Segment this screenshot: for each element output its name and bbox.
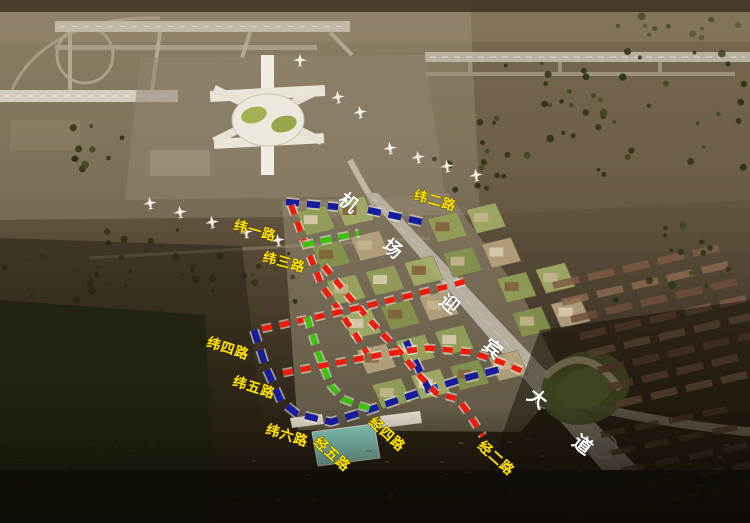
tree <box>663 226 668 231</box>
tree <box>176 228 179 231</box>
tree <box>687 158 694 165</box>
tree <box>106 156 111 161</box>
tree <box>716 112 720 116</box>
tree <box>432 157 437 162</box>
tree <box>600 109 608 117</box>
tree <box>701 250 707 256</box>
tree <box>696 121 700 125</box>
tree <box>480 140 485 145</box>
tree <box>70 124 77 131</box>
tree <box>485 149 490 154</box>
tree <box>619 73 626 80</box>
tree <box>702 145 706 149</box>
tree <box>543 81 548 86</box>
tree <box>624 48 631 55</box>
tree <box>737 99 744 106</box>
tree <box>477 119 484 126</box>
tree <box>741 81 747 87</box>
tree <box>481 159 487 165</box>
tree <box>581 68 587 74</box>
tree <box>452 187 458 193</box>
tree <box>598 98 602 102</box>
tree <box>559 99 564 104</box>
tree <box>475 183 481 189</box>
tree <box>647 104 651 108</box>
tree <box>704 284 708 288</box>
tree <box>567 89 572 94</box>
tree <box>504 64 508 68</box>
tree <box>251 273 255 277</box>
tree <box>494 116 499 121</box>
tree <box>524 152 531 159</box>
tree <box>89 146 95 152</box>
tree <box>582 109 589 116</box>
tree <box>597 168 601 172</box>
tree <box>669 248 673 252</box>
tree <box>290 275 295 280</box>
tree <box>104 228 110 234</box>
tree <box>725 61 730 66</box>
tree <box>646 277 653 284</box>
tree <box>72 156 78 162</box>
tree <box>663 233 667 237</box>
tree <box>740 164 747 171</box>
tree <box>492 121 496 125</box>
tree <box>625 154 631 160</box>
tree <box>601 172 606 177</box>
tree <box>583 73 590 80</box>
tree <box>638 55 642 59</box>
aerial-map: 纬一路纬二路纬三路纬四路纬五路纬六路经五路经四路经二路机场迎宾大道 <box>0 0 750 523</box>
tree <box>693 51 697 55</box>
tree <box>591 93 596 98</box>
tree <box>713 293 718 298</box>
tree <box>720 272 726 278</box>
tree <box>541 101 548 108</box>
tree <box>699 240 704 245</box>
tree <box>540 62 543 65</box>
tree <box>548 103 552 107</box>
tree <box>252 306 259 313</box>
aerial-map-rendering: 纬一路纬二路纬三路纬四路纬五路纬六路经五路经四路经二路机场迎宾大道 <box>0 0 750 523</box>
tree <box>595 124 601 130</box>
tree <box>561 131 565 135</box>
tree <box>547 135 555 143</box>
tree <box>81 161 89 169</box>
tree <box>479 165 484 170</box>
tree <box>501 174 506 179</box>
tree <box>569 103 573 107</box>
tree <box>718 50 726 58</box>
tree <box>121 236 128 243</box>
tree <box>120 135 125 140</box>
tree <box>256 264 261 269</box>
tree <box>628 147 634 153</box>
tree <box>726 266 732 272</box>
tree <box>680 222 687 229</box>
tree <box>75 145 82 152</box>
tree <box>505 152 511 158</box>
tree <box>668 281 676 289</box>
tree <box>707 245 713 251</box>
tree <box>613 297 619 303</box>
tree <box>89 124 93 128</box>
tree <box>689 271 694 276</box>
tree <box>736 118 742 124</box>
tree <box>677 249 684 256</box>
tree <box>545 71 552 78</box>
tree <box>293 299 298 304</box>
tree <box>663 81 669 87</box>
tree <box>571 133 576 138</box>
tree <box>484 186 489 191</box>
tree <box>494 173 500 179</box>
tree <box>251 279 258 286</box>
tree <box>613 120 617 124</box>
